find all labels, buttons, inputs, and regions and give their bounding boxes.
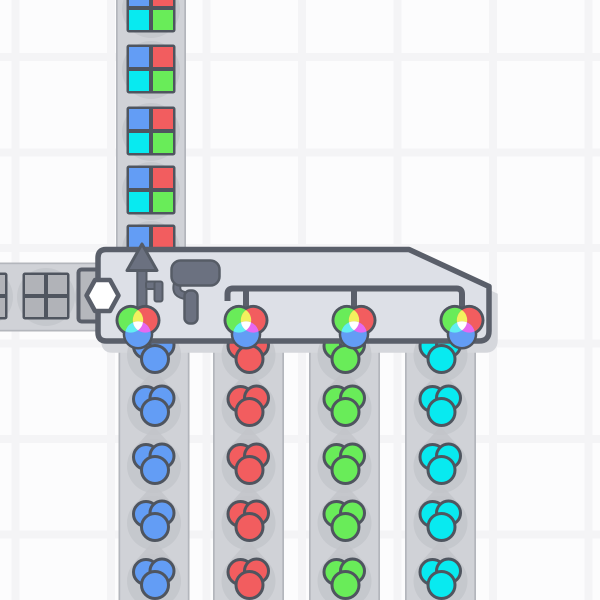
uncolored-shape-item xyxy=(23,273,70,320)
uncolored-shape-item xyxy=(0,273,8,320)
game-viewport xyxy=(0,0,600,600)
grid-line-horizontal xyxy=(0,435,600,443)
quad-painter-machine[interactable] xyxy=(79,244,490,350)
painted-shape-item xyxy=(127,45,176,94)
painted-shape-item xyxy=(127,166,176,215)
grid-line-horizontal xyxy=(0,531,600,539)
painted-shape-item xyxy=(127,0,176,33)
grid-line-horizontal xyxy=(0,53,600,61)
painted-shape-item xyxy=(127,107,176,156)
grid-line-horizontal xyxy=(0,149,600,157)
grid-line-vertical xyxy=(585,0,593,600)
game-scene-svg xyxy=(0,0,600,600)
shape-input-hexagon-icon xyxy=(87,280,119,311)
